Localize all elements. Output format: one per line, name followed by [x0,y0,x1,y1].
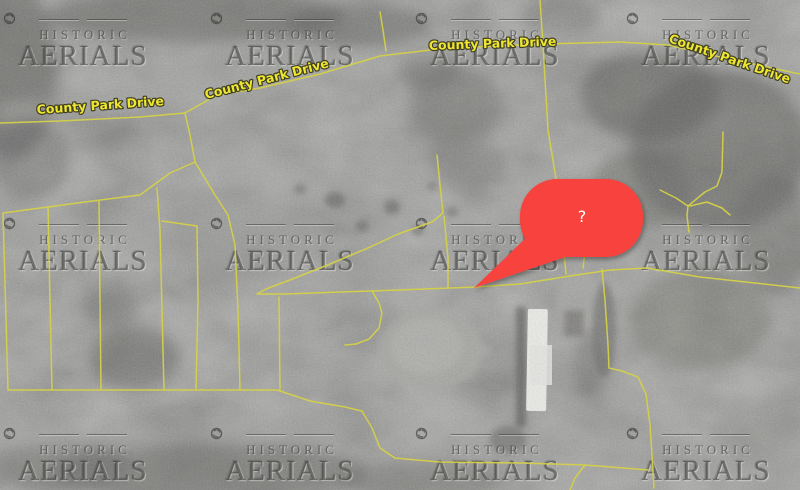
aerial-map-viewport: HISTORIC AERIALS HISTORIC AERIALS [0,0,800,490]
aerial-photo [0,0,800,490]
marker-question-label: ? [578,207,587,226]
